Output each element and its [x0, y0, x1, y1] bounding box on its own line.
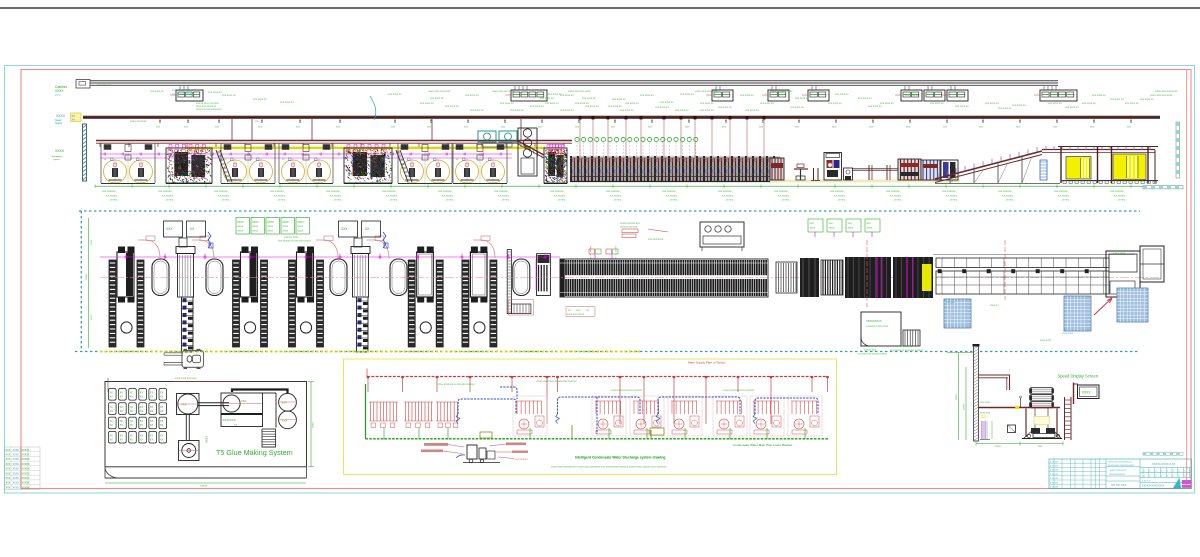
svg-text:XXXX-XXX-XXX: XXXX-XXX-XXX	[1110, 470, 1127, 472]
svg-text:XXX: XXX	[979, 127, 984, 129]
svg-text:XXX: XXX	[427, 127, 432, 129]
svg-text:XX XXX XXXX XX XXX: XX XXX XXXX XX XXX	[172, 94, 194, 96]
svg-text:XXXXX: XXXXX	[200, 486, 208, 488]
svg-text:XXX: XXX	[501, 127, 506, 129]
svg-text:XXX XXXX XX: XXX XXXX XX	[560, 95, 574, 97]
svg-text:XXXX: XXXX	[13, 468, 20, 471]
svg-text:XX-XXXXX: XX-XXXXX	[386, 196, 397, 198]
svg-text:XXX XXXX XX: XXX XXXX XX	[745, 110, 759, 112]
svg-text:XXXX XXX: XXXX XXX	[980, 413, 991, 415]
svg-text:XXX XXXXXX: XXX XXXXXX	[1110, 191, 1124, 193]
svg-text:XXX: XXX	[1016, 127, 1021, 129]
svg-text:XXX XXXXXX: XXX XXXXXX	[774, 191, 788, 193]
svg-text:XX-XXXXX: XX-XXXXX	[330, 196, 341, 198]
svg-text:XXX XXXX XX: XXX XXXX XX	[868, 106, 882, 108]
svg-text:XX: XX	[72, 114, 76, 118]
svg-text:(X XXX): (X XXX)	[166, 200, 174, 202]
svg-text:XXXXXXXXXX XXXXXXXX XXXX: XXXXXXXXXX XXXXXXXX XXXX	[1108, 465, 1135, 467]
svg-text:XXXXX: XXXXX	[22, 472, 30, 475]
svg-text:XXX XXXX XX: XXX XXXX XX	[582, 98, 596, 100]
svg-text:XXX: XXX	[576, 310, 581, 312]
svg-text:XXXX: XXXX	[13, 477, 20, 480]
svg-text:XXXX XXX XXXXX: XXXX XXX XXXXX	[567, 314, 585, 316]
svg-text:XXX XXXXXX: XXX XXXXXX	[382, 191, 396, 193]
svg-text:XXXX: XXXX	[267, 231, 273, 233]
svg-text:XX-XXXXX: XX-XXXXX	[778, 196, 789, 198]
svg-text:XXXX XXXX XXX XXXX: XXXX XXXX XXX XXXX	[175, 378, 197, 380]
svg-text:XXX: XXX	[6, 486, 11, 489]
svg-text:XXX XXXX XX: XXX XXXX XX	[1092, 95, 1106, 97]
svg-text:XXX: XXX	[848, 223, 853, 225]
svg-text:XXX: XXX	[156, 127, 161, 129]
svg-text:XXXX: XXXX	[956, 394, 958, 400]
svg-text:XXX: XXX	[6, 472, 11, 475]
svg-text:XXX: XXX	[795, 127, 800, 129]
svg-text:XX: XX	[120, 424, 124, 427]
svg-text:XXX XXXXXX: XXX XXXXXX	[550, 191, 564, 193]
svg-text:XXX XXXX XX: XXX XXXX XX	[388, 94, 402, 96]
svg-text:XXXX: XXXX	[297, 226, 303, 228]
svg-text:XXXXX: XXXXX	[22, 482, 30, 485]
svg-text:XXXX: XXXX	[86, 274, 88, 280]
svg-text:XXX XXXX XX: XXX XXXX XX	[620, 110, 634, 112]
svg-text:XXXX: XXXX	[252, 221, 259, 224]
svg-text:XX-XXXXX: XX-XXXXX	[498, 196, 509, 198]
svg-text:XXX XXXXXX: XXX XXXXXX	[718, 191, 732, 193]
svg-text:XXX XXXXXX: XXX XXXXXX	[606, 191, 620, 193]
svg-text:XXX XXXX XX: XXX XXXX XX	[718, 107, 732, 109]
svg-text:XXX XXXX XX: XXX XXXX XX	[253, 99, 267, 101]
svg-text:XXX XXXXXX: XXX XXXXXX	[494, 191, 508, 193]
svg-text:(X XXX): (X XXX)	[446, 200, 454, 202]
svg-text:XXX: XXX	[810, 223, 815, 225]
svg-text:XX-XXXXX: XX-XXXXX	[1114, 196, 1125, 198]
svg-text:XXXX: XXXX	[252, 226, 258, 228]
svg-text:XXX: XXX	[282, 418, 287, 422]
svg-text:XXX XXXXXX: XXX XXXXXX	[886, 191, 900, 193]
svg-text:X XX XXX: X XX XXX	[1050, 478, 1059, 480]
svg-text:XXX XXXX XX: XXX XXXX XX	[1110, 99, 1124, 101]
svg-text:XXXX XXX XXXXX XX: XXXX XXX XXXXX XX	[196, 106, 217, 108]
svg-text:XXX XXXXXX: XXX XXXXXX	[326, 191, 340, 193]
svg-text:XXX: XXX	[6, 468, 11, 471]
svg-text:XXX XXXXXX: XXX XXXXXX	[438, 191, 452, 193]
svg-text:XXXXXXXXXXXXXX: XXXXXXXXXXXXXX	[1142, 485, 1165, 488]
svg-text:XXX XXXX XX: XXX XXXX XX	[660, 102, 674, 104]
svg-text:XXX: XXX	[867, 223, 872, 225]
svg-text:XXXXX: XXXXX	[22, 458, 30, 461]
svg-text:XXXX: XXXX	[13, 458, 20, 461]
svg-text:XXXX: XXXX	[829, 228, 835, 230]
svg-text:Intelligent Condensate Water D: Intelligent Condensate Water Discharge s…	[575, 456, 666, 460]
svg-text:XXXX-XXX XXX-XXXX: XXXX-XXX XXX-XXXX	[1155, 91, 1178, 93]
svg-text:XX: XX	[160, 438, 164, 441]
svg-text:XXX XXX: XXX XXX	[946, 302, 955, 304]
svg-text:XXXX XXXX: XXXX XXXX	[1062, 333, 1074, 335]
svg-text:X XX XXX: X XX XXX	[1050, 482, 1059, 484]
svg-text:XXX: XXX	[6, 463, 11, 466]
svg-text:XXXX-XXX XXX-XXXX: XXXX-XXX XXX-XXXX	[695, 91, 718, 93]
svg-text:XX: XX	[130, 396, 134, 399]
svg-text:XXXX: XXXX	[205, 436, 209, 443]
svg-text:XXX: XXX	[341, 227, 348, 231]
svg-text:XXXXX: XXXXX	[22, 486, 30, 489]
svg-text:XX: XX	[130, 420, 134, 423]
svg-text:XX: XX	[160, 392, 164, 395]
svg-text:XXX: XXX	[184, 127, 189, 129]
svg-text:XX: XX	[110, 396, 114, 399]
svg-text:XXXXXXXXXXX: XXXXXXXXXXX	[1109, 474, 1126, 476]
svg-text:XXXX XXXX XXXXXXXXX X XXXX XXX: XXXX XXXX XXXXXXXXX X XXXX XXX-XXXXXXXX …	[551, 467, 667, 469]
svg-text:XXXX: XXXX	[848, 228, 854, 230]
svg-text:XXX XXXX: XXX XXXX	[980, 402, 991, 404]
svg-text:XXX XXXX XX: XXX XXXX XX	[222, 95, 236, 97]
svg-text:XXX XXXXXX: XXX XXXXXX	[270, 191, 284, 193]
svg-text:XXX XXXX XX: XXX XXXX XX	[560, 110, 574, 112]
svg-text:XXXXXXXXX: XXXXXXXXX	[866, 319, 882, 323]
svg-text:XXX: XXX	[241, 399, 246, 403]
svg-text:XXXX: XXXX	[91, 314, 93, 320]
svg-text:XX: XX	[140, 392, 144, 395]
svg-text:XXX XXXX XX: XXX XXXX XX	[540, 98, 554, 100]
svg-text:XXX XXXX XX: XXX XXXX XX	[97, 85, 111, 87]
svg-text:XXX XXXX XX: XXX XXXX XX	[445, 106, 459, 108]
svg-text:X XX XXX: X XX XXX	[1050, 474, 1059, 476]
svg-text:XXX: XXX	[282, 401, 287, 405]
svg-text:XXX: XXX	[258, 127, 263, 129]
svg-text:XXX XXXXXX: XXX XXXXXX	[158, 191, 172, 193]
svg-text:XX-XXXXX: XX-XXXXX	[890, 196, 901, 198]
svg-text:XXX XXXX XX: XXX XXXX XX	[880, 103, 894, 105]
svg-text:XXXXX XXXXXX XXX: XXXXX XXXXXX XXX	[620, 223, 640, 225]
svg-text:XXX XXXX XX: XXX XXXX XX	[835, 94, 849, 96]
svg-text:XXX XXXXXX: XXX XXXXXX	[998, 191, 1012, 193]
svg-text:XX: XX	[120, 406, 124, 409]
svg-text:XXXX: XXXX	[267, 221, 274, 224]
svg-text:XXXXX XX XXX XXXXXXXX: XXXXX XX XXX XXXXXXXX	[196, 109, 222, 111]
svg-text:XXX XXXXXX: XXX XXXXXX	[515, 459, 528, 461]
svg-text:XXX: XXX	[722, 127, 727, 129]
svg-text:XXX XXXX XX: XXX XXXX XX	[680, 94, 694, 96]
svg-text:XXXX: XXXX	[1082, 391, 1091, 395]
svg-text:(X XXX): (X XXX)	[1118, 200, 1126, 202]
svg-text:(X XXX): (X XXX)	[1006, 200, 1014, 202]
svg-text:XXXX: XXXX	[237, 231, 243, 233]
svg-text:(X XXX): (X XXX)	[558, 200, 566, 202]
svg-text:XXX: XXX	[1090, 127, 1095, 129]
svg-text:XXX XXXX XX: XXX XXXX XX	[575, 103, 589, 105]
svg-text:XXX: XXX	[869, 127, 874, 129]
svg-text:XX: XX	[110, 438, 114, 441]
svg-text:XX XXXXX XX XXXXXX XXXXX: XX XXXXX XX XXXXXX XXXXX	[858, 354, 888, 356]
svg-text:XXX XXXX XX: XXX XXXX XX	[655, 107, 669, 109]
svg-text:XXXX: XXXX	[55, 89, 64, 93]
svg-text:XX: XX	[130, 392, 134, 395]
svg-text:XX: XX	[140, 438, 144, 441]
svg-text:XX: XX	[140, 420, 144, 423]
svg-text:XX-XXXXX: XX-XXXXX	[834, 196, 845, 198]
svg-text:(X XXX): (X XXX)	[334, 200, 342, 202]
svg-text:XXX XXXX XX: XXX XXXX XX	[1048, 103, 1062, 105]
svg-text:X XX XXX: X XX XXX	[1050, 461, 1059, 463]
svg-text:XXXXX XXXXX XXXX: XXXXX XXXXX XXXX	[172, 90, 193, 92]
svg-text:XXXX-XXX XXX-XXXX: XXXX-XXX XXX-XXXX	[492, 91, 515, 93]
svg-text:(X XXX): (X XXX)	[390, 200, 398, 202]
svg-text:XXXX: XXXX	[313, 422, 315, 428]
svg-text:XXX XXXXXX XX XXXXXXX XXXXX: XXX XXXXXX XX XXXXXXX XXXXX	[278, 241, 312, 243]
svg-text:XX-XXXXX: XX-XXXXX	[1058, 196, 1069, 198]
svg-text:XXX: XXX	[181, 403, 187, 407]
svg-text:(X XXX): (X XXX)	[894, 200, 902, 202]
svg-text:XX-XXXXX: XX-XXXXX	[666, 196, 677, 198]
svg-text:XXXX: XXXX	[282, 226, 288, 228]
svg-text:XXXX: XXXX	[252, 231, 258, 233]
svg-text:XXX: XXX	[829, 223, 834, 225]
svg-text:XX: XX	[120, 392, 124, 395]
svg-text:XXXXX XXX: XXXXX XXX	[864, 350, 877, 352]
svg-text:XXXXXX XXX XXX: XXXXXX XXX XXX	[620, 227, 638, 229]
svg-text:XXXX: XXXX	[995, 446, 1001, 448]
svg-text:XX: XX	[140, 410, 144, 413]
svg-text:(X XXX): (X XXX)	[110, 200, 118, 202]
svg-text:XX XXXXXX XX XXXXXXX XXXXXX: XX XXXXXX XX XXXXXXX XXXXXX	[890, 350, 924, 352]
svg-text:XXXX: XXXX	[237, 221, 244, 224]
svg-text:XX: XX	[150, 406, 154, 409]
svg-text:XXXX: XXXX	[282, 221, 289, 224]
svg-text:XXXX: XXXX	[267, 226, 273, 228]
svg-text:XXX XXXX XX: XXX XXXX XX	[420, 103, 434, 105]
svg-text:Equipment: Equipment	[52, 155, 63, 158]
svg-text:XXXX-XXX XXX-XXXX: XXXX-XXX XXX-XXXX	[428, 91, 451, 93]
svg-text:XXX: XXX	[943, 127, 948, 129]
svg-text:XXX XXXXXX: XXX XXXXXX	[214, 191, 228, 193]
svg-text:XX: XX	[120, 434, 124, 437]
svg-text:(X XXX): (X XXX)	[614, 200, 622, 202]
svg-text:XXXXX: XXXXX	[22, 454, 30, 457]
svg-text:XX: XX	[160, 424, 164, 427]
svg-text:XXX XXXX XX: XXX XXXX XX	[740, 95, 754, 97]
svg-text:XX: XX	[110, 406, 114, 409]
svg-text:XXX: XXX	[464, 127, 469, 129]
svg-text:XX: XX	[140, 406, 144, 409]
svg-text:X XXXXX XXXX XXXX: X XXXXX XXXX XXXX	[866, 326, 889, 328]
svg-text:XXX XXXX XX: XXX XXXX XX	[1082, 103, 1096, 105]
svg-text:(X XXX): (X XXX)	[726, 200, 734, 202]
svg-text:XX-XXXXX: XX-XXXXX	[946, 196, 957, 198]
svg-text:XX XX XXX: XX XX XXX	[1111, 483, 1127, 487]
svg-text:XXX XX XXX X XX XXXX: XXX XX XXX X XX XXXX	[196, 103, 219, 105]
svg-text:Condensate Water Main Pipe Low: Condensate Water Main Pipe Lower Bracket	[733, 443, 792, 447]
svg-text:XXXXX: XXXXX	[22, 477, 30, 480]
svg-text:XXX: XXX	[6, 482, 11, 485]
svg-text:(X XXX): (X XXX)	[1062, 200, 1070, 202]
svg-text:XXXX-XXX XXX-XXXX: XXXX-XXX XXX-XXXX	[1150, 95, 1173, 97]
svg-text:XXXX: XXXX	[13, 486, 20, 489]
svg-text:XX: XX	[150, 396, 154, 399]
svg-text:XXXXX XXXX: XXXXX XXXX	[900, 346, 914, 348]
svg-text:XXX XXXX XX: XXX XXXX XX	[998, 108, 1012, 110]
svg-text:XXX XXXX XX: XXX XXXX XX	[208, 92, 222, 94]
svg-text:XX-XXXXX: XX-XXXXX	[162, 196, 173, 198]
svg-text:XXXX: XXXX	[867, 228, 873, 230]
svg-text:XXXXX: XXXXX	[22, 463, 30, 466]
svg-text:XXX XXXX XX: XXX XXXX XX	[465, 95, 479, 97]
svg-text:X XX XXX: X XX XXX	[1050, 470, 1059, 472]
svg-text:XX: XX	[150, 434, 154, 437]
svg-text:XXXX: XXXX	[56, 114, 66, 118]
svg-text:XXXX: XXXX	[297, 221, 304, 224]
svg-text:power: power	[55, 94, 61, 97]
svg-text:XXXX: XXXX	[91, 239, 93, 245]
svg-text:XXX: XXX	[166, 227, 173, 231]
svg-text:XXXX XXXXXXX XX XXX/XXX XXX/XX: XXXX XXXXXXX XX XXX/XXX XXX/XXX	[438, 384, 475, 386]
svg-text:XXXX-XXX XXX-XXXX: XXXX-XXX XXX-XXXX	[568, 91, 591, 93]
svg-text:XX: XX	[120, 410, 124, 413]
svg-text:XX-XXXXX: XX-XXXXX	[722, 196, 733, 198]
svg-text:XX-XXXXX: XX-XXXXX	[218, 196, 229, 198]
svg-text:XXXX: XXXX	[297, 231, 303, 233]
svg-text:T5 Glue Making System: T5 Glue Making System	[216, 448, 293, 457]
svg-text:XXX XXXX XX: XXX XXXX XX	[675, 110, 689, 112]
svg-text:XX --: XX --	[255, 121, 260, 123]
svg-text:XXX XXXX XX: XXX XXXX XX	[858, 98, 872, 100]
svg-text:XXX: XXX	[6, 477, 11, 480]
svg-text:XXX XXXX XX: XXX XXXX XX	[1012, 105, 1026, 107]
svg-text:XXXXX XXXXXXXX XX XXXX/XXX XXX: XXXXX XXXXXXXX XX XXXX/XXX XXX/XXX	[536, 381, 577, 383]
svg-text:XXXX: XXXX	[964, 404, 966, 410]
svg-text:XX: XX	[160, 434, 164, 437]
svg-text:XXX XXXX XX: XXX XXXX XX	[790, 107, 804, 109]
svg-text:XXX XXXX XX: XXX XXXX XX	[700, 103, 714, 105]
svg-text:Speed Display Screen: Speed Display Screen	[1058, 374, 1099, 379]
svg-text:XXX XXXX XX: XXX XXXX XX	[1125, 103, 1139, 105]
svg-text:XXXX: XXXX	[282, 231, 288, 233]
svg-text:XX: XX	[110, 410, 114, 413]
svg-text:XXX XXXX XX: XXX XXXX XX	[585, 106, 599, 108]
svg-text:XX-XXXXX: XX-XXXXX	[1002, 196, 1013, 198]
svg-text:(X XXX): (X XXX)	[782, 200, 790, 202]
svg-text:XXX: XXX	[296, 127, 301, 129]
svg-text:XXX XXXX XX: XXX XXXX XX	[1140, 99, 1154, 101]
svg-text:X XX XXX: X XX XXX	[1050, 466, 1059, 468]
svg-text:XX: XX	[120, 396, 124, 399]
svg-text:XX-XXXXX: XX-XXXXX	[554, 196, 565, 198]
svg-text:XXX XXXX XX: XXX XXXX XX	[608, 106, 622, 108]
svg-text:XXX: XXX	[6, 454, 11, 457]
svg-text:XX: XX	[160, 410, 164, 413]
svg-text:XXX XXXX XX: XXX XXXX XX	[470, 110, 484, 112]
svg-text:XX: XX	[130, 406, 134, 409]
svg-text:XXX XXXX XX: XXX XXXX XX	[280, 102, 294, 104]
svg-text:XXX XXXX XX: XXX XXXX XX	[612, 99, 626, 101]
svg-text:XXX XXXX XX: XXX XXXX XX	[905, 95, 919, 97]
svg-text:XX-XXXXX: XX-XXXXX	[610, 196, 621, 198]
svg-text:XXX XXXX XX: XXX XXXX XX	[640, 95, 654, 97]
svg-text:XX: XX	[160, 420, 164, 423]
svg-text:XX: XX	[160, 396, 164, 399]
svg-text:XX: XX	[150, 410, 154, 413]
svg-text:XXX XXXXXX: XXX XXXXXX	[942, 191, 956, 193]
svg-text:XXXX: XXXX	[237, 226, 243, 228]
svg-text:XXXX: XXXX	[810, 228, 816, 230]
svg-text:XX: XX	[130, 424, 134, 427]
svg-text:XX-XXXXX: XX-XXXXX	[274, 196, 285, 198]
svg-text:XX: XX	[140, 424, 144, 427]
svg-text:Supply: Supply	[55, 122, 63, 125]
svg-text:X XX X X: X XX X X	[1142, 480, 1151, 482]
svg-text:XXXXX XXXXXXXXXXX XXX/XXX: XXXXX XXXXXXXXXXX XXX/XXX	[723, 390, 755, 392]
svg-text:XXX XXXX XX: XXX XXXX XX	[430, 98, 444, 100]
svg-text:XXXXX: XXXXX	[22, 449, 30, 452]
svg-text:X XX XXX: X XX XXX	[1050, 487, 1059, 489]
svg-text:Main Supply Pipe of Steam: Main Supply Pipe of Steam	[688, 361, 726, 365]
svg-text:XXXX: XXXX	[13, 449, 20, 452]
svg-text:XXX XXXX XX: XXX XXXX XX	[955, 106, 969, 108]
svg-text:XXXX: XXXX	[55, 149, 65, 153]
svg-text:XXXXX: XXXXX	[22, 468, 30, 471]
svg-text:(X XXX): (X XXX)	[838, 200, 846, 202]
svg-text:XXXX XXXXXXX: XXXX XXXXXXX	[130, 121, 147, 123]
svg-text:XXX XXXX XX: XXX XXXX XX	[625, 103, 639, 105]
svg-text:XX: XX	[150, 438, 154, 441]
svg-text:XXXXXXX: XXXXXXX	[223, 418, 236, 422]
svg-text:XXX: XXX	[611, 127, 616, 129]
svg-text:XXX XXXX XX: XXX XXXX XX	[985, 103, 999, 105]
svg-text:XXX XXXXXX: XXX XXXXXX	[830, 191, 844, 193]
svg-text:XXX: XXX	[832, 127, 837, 129]
svg-text:XXX XXXX XX: XXX XXXX XX	[760, 103, 774, 105]
svg-text:XXX XXXXXXXX: XXX XXXXXXXX	[648, 239, 664, 241]
svg-text:XXXX.XXXX: XXXX.XXXX	[1113, 253, 1126, 255]
svg-text:XXXX: XXXX	[13, 482, 20, 485]
svg-text:Layout: Layout	[53, 158, 60, 161]
svg-text:XXXXX XXXXXXXXXXX XXX/XXX: XXXXX XXXXXXXXXXX XXX/XXX	[611, 390, 643, 392]
svg-text:XX: XX	[140, 434, 144, 437]
svg-text:XXX XXXX XX: XXX XXXX XX	[545, 103, 559, 105]
svg-text:XXX: XXX	[575, 127, 580, 129]
svg-text:XXXXXX XXXX: XXXXXX XXXX	[284, 237, 299, 239]
svg-text:XXXX: XXXX	[13, 454, 20, 457]
svg-text:XXX: XXX	[648, 127, 653, 129]
svg-text:(X XXX): (X XXX)	[278, 200, 286, 202]
svg-text:XX: XX	[140, 396, 144, 399]
svg-text:XXX XXXX XX: XXX XXXX XX	[700, 110, 714, 112]
svg-text:XX: XX	[110, 424, 114, 427]
svg-text:XXXXX-XXXX-X-XX: XXXXX-XXXX-X-XX	[1152, 462, 1176, 466]
svg-text:XXX XXXX XX: XXX XXXX XX	[150, 91, 164, 93]
svg-text:XX-XXXXX: XX-XXXXX	[442, 196, 453, 198]
svg-text:XXX: XXX	[759, 127, 764, 129]
svg-text:XXX XXXX XX: XXX XXXX XX	[930, 103, 944, 105]
svg-text:XXXX-XXX XXX-XXXX: XXXX-XXX XXX-XXXX	[770, 91, 793, 93]
svg-text:XXX: XXX	[685, 127, 690, 129]
svg-text:XXX XXXX XX: XXX XXXX XX	[795, 98, 809, 100]
svg-text:XX-XXXXX: XX-XXXXX	[106, 196, 117, 198]
svg-text:XX: XX	[130, 438, 134, 441]
svg-text:XXX XXXXXX: XXX XXXXXX	[102, 191, 116, 193]
svg-text:XXXX XX: XXXX XX	[990, 305, 999, 307]
svg-text:XX: XX	[150, 392, 154, 395]
svg-text:XXX: XXX	[1127, 127, 1132, 129]
svg-text:XXXX XXXX: XXXX XXXX	[1040, 340, 1052, 342]
svg-text:XXXX: XXXX	[13, 463, 20, 466]
svg-text:XX: XX	[110, 434, 114, 437]
svg-text:XXX XXXX XX: XXX XXXX XX	[500, 103, 514, 105]
svg-text:XXX XXXX XX: XXX XXXX XX	[510, 110, 524, 112]
svg-text:XX: XX	[72, 118, 76, 122]
svg-text:XX: XX	[130, 434, 134, 437]
svg-text:XX: XX	[120, 438, 124, 441]
